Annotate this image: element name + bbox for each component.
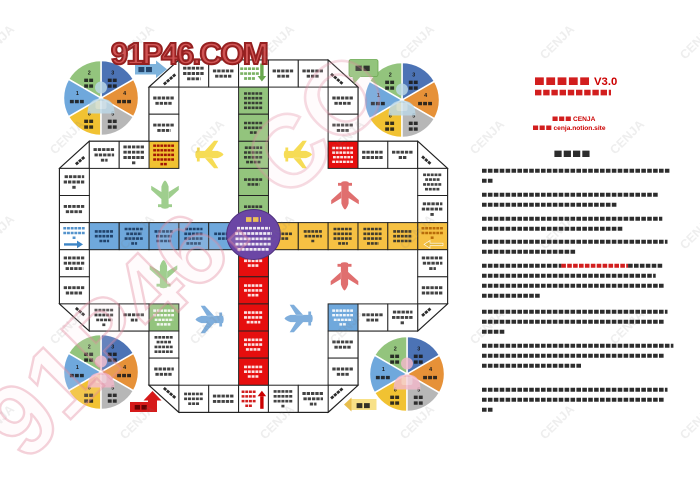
svg-text:3: 3 <box>412 73 415 79</box>
svg-text:V3.0: V3.0 <box>594 76 617 88</box>
svg-text:2: 2 <box>394 347 397 353</box>
svg-text:1: 1 <box>382 367 385 373</box>
svg-text:4: 4 <box>123 91 126 97</box>
svg-text:1: 1 <box>76 91 79 97</box>
svg-text:cenja.notion.site: cenja.notion.site <box>554 125 606 132</box>
svg-text:2: 2 <box>389 73 392 79</box>
svg-text:4: 4 <box>424 93 427 99</box>
svg-text:4: 4 <box>429 367 432 373</box>
svg-text:3: 3 <box>417 347 420 353</box>
svg-text:2: 2 <box>88 71 91 77</box>
svg-text:CENJA: CENJA <box>573 116 596 123</box>
svg-text:3: 3 <box>111 71 114 77</box>
